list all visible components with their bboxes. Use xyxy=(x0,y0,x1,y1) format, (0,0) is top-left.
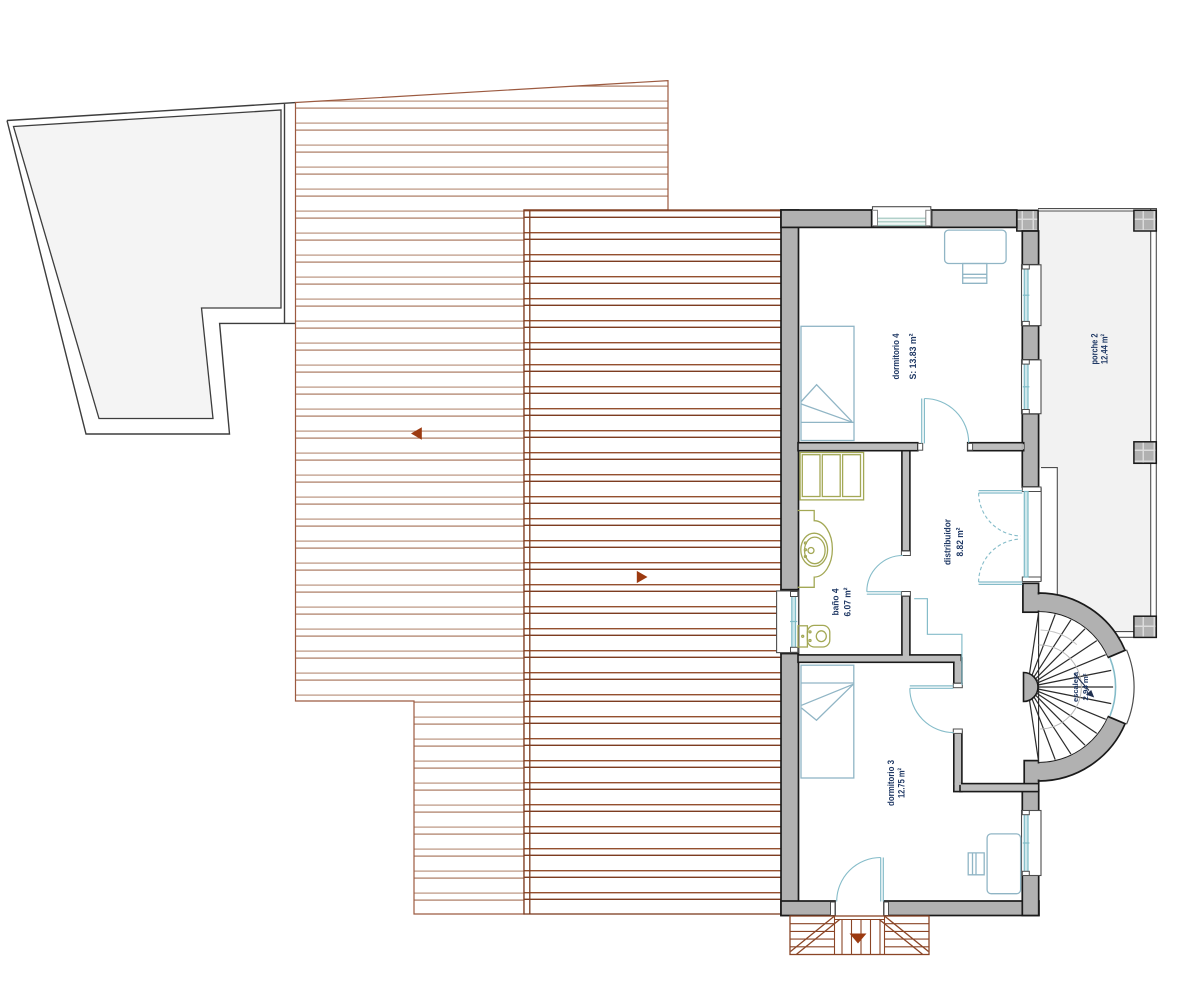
svg-text:S: 13.83 m²: S: 13.83 m² xyxy=(908,334,919,380)
svg-text:12.44 m²: 12.44 m² xyxy=(1100,334,1111,364)
svg-text:8.82 m²: 8.82 m² xyxy=(955,528,966,557)
svg-text:escalera: escalera xyxy=(1071,671,1080,702)
svg-text:12.75 m²: 12.75 m² xyxy=(896,768,907,798)
svg-text:baño 4: baño 4 xyxy=(831,588,842,616)
svg-text:dormitorio 4: dormitorio 4 xyxy=(891,333,902,380)
svg-text:6.07 m²: 6.07 m² xyxy=(843,588,854,617)
svg-text:distribuidor: distribuidor xyxy=(943,519,954,565)
svg-text:porche 2: porche 2 xyxy=(1089,334,1100,365)
svg-text:2.94 m²: 2.94 m² xyxy=(1081,673,1090,701)
